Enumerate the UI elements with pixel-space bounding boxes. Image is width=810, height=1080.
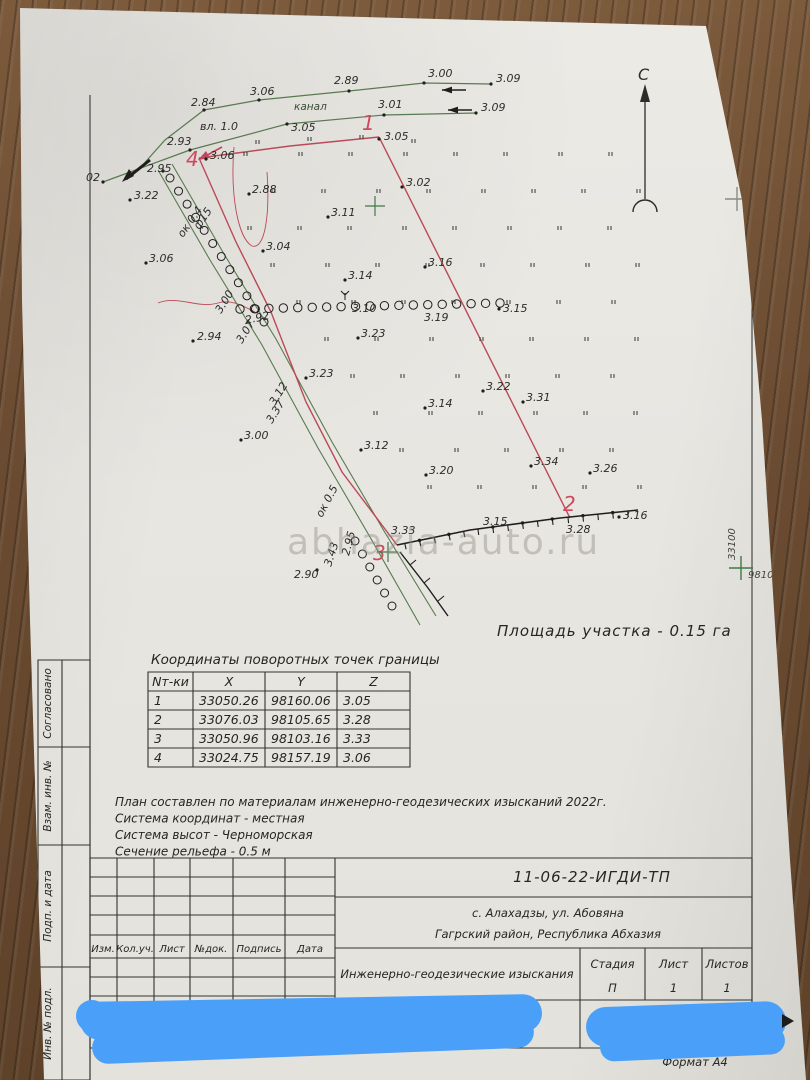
elevation-dot bbox=[422, 81, 425, 84]
revision-header-cell: Дата bbox=[296, 944, 323, 955]
elevation-label: 3.31 bbox=[526, 391, 551, 404]
sidebar-label: Взам. инв. № bbox=[42, 760, 54, 831]
elevation-dot bbox=[423, 265, 426, 268]
table-header-cell: X bbox=[224, 674, 234, 689]
boundary-4-3 bbox=[199, 158, 397, 545]
address-line2: Гагрский район, Республика Абхазия bbox=[435, 927, 661, 941]
elevation-dot bbox=[617, 515, 620, 518]
arrow-mark bbox=[782, 1014, 794, 1028]
table-cell: 33076.03 bbox=[199, 712, 259, 727]
plan-svg: 2.843.062.893.003.093.013.09вл. 1.03.053… bbox=[0, 0, 810, 1080]
elevation-label: 3.05 bbox=[384, 130, 409, 143]
grid-coordinates: 33100 98100 bbox=[727, 528, 780, 581]
elevation-label: 3.23 bbox=[309, 367, 334, 380]
elevation-dot bbox=[423, 406, 426, 409]
sidebar-label: Инв. № подл. bbox=[42, 987, 54, 1059]
table-cell: 98105.65 bbox=[271, 712, 331, 727]
table-cell: 98157.19 bbox=[271, 750, 331, 765]
table-header-cell: Nт-ки bbox=[152, 674, 189, 689]
elevation-label: 3.09 bbox=[496, 72, 521, 85]
elevation-label: 3.26 bbox=[593, 462, 618, 475]
coords-table: Nт-киXYZ133050.2698160.063.05233076.0398… bbox=[148, 672, 410, 767]
table-cell: 4 bbox=[154, 750, 162, 765]
elevation-label: 3.22 bbox=[486, 380, 511, 393]
paper-sheet: 2.843.062.893.003.093.013.09вл. 1.03.053… bbox=[0, 0, 810, 1080]
boundary-point-number: 1 bbox=[362, 111, 375, 135]
elevation-dot bbox=[588, 471, 591, 474]
elevation-dot bbox=[285, 122, 288, 125]
table-cell: 2 bbox=[154, 712, 162, 727]
elevation-dot bbox=[377, 137, 380, 140]
elevation-label: 3.06 bbox=[250, 85, 275, 98]
table-cell: 3.05 bbox=[343, 693, 371, 708]
elevation-label: 2.84 bbox=[191, 96, 216, 109]
table-cell: 98160.06 bbox=[271, 693, 331, 708]
elevation-label: 3.09 bbox=[481, 101, 506, 114]
elevation-dot bbox=[347, 89, 350, 92]
elevation-dot bbox=[326, 215, 329, 218]
table-cell: 3.33 bbox=[343, 731, 371, 746]
elevation-dot bbox=[204, 157, 207, 160]
elevation-label: 3.06 bbox=[210, 149, 235, 162]
stage-header-cell: Лист bbox=[658, 957, 688, 971]
elevation-dot bbox=[261, 249, 264, 252]
boundary-point-number: 4 bbox=[186, 147, 199, 171]
revision-header-cell: №док. bbox=[194, 944, 228, 955]
elevation-label: 3.01 bbox=[378, 98, 403, 111]
survey-type: Инженерно-геодезические изыскания bbox=[340, 967, 573, 981]
elevation-dot bbox=[521, 400, 524, 403]
stage-header-cell: Листов bbox=[705, 957, 749, 971]
revision-header-cell: Лист bbox=[158, 944, 186, 955]
elevation-dot bbox=[424, 473, 427, 476]
stage-value-cell: П bbox=[608, 981, 617, 995]
note-line: Система координат - местная bbox=[115, 812, 305, 826]
elevation-dot bbox=[356, 336, 359, 339]
elevation-label: 3.22 bbox=[134, 189, 159, 202]
elevation-label: 3.10 bbox=[352, 302, 377, 315]
elevation-label: 3.19 bbox=[424, 311, 449, 324]
canal-label: канал bbox=[294, 101, 327, 113]
elevation-dot bbox=[101, 180, 104, 183]
elevation-label: 3.23 bbox=[361, 327, 386, 340]
censor-scribble-left bbox=[76, 994, 542, 1064]
coords-table-title: Координаты поворотных точек границы bbox=[151, 652, 440, 668]
table-header-cell: Y bbox=[297, 674, 306, 689]
elevation-dot bbox=[400, 185, 403, 188]
elevation-label: 2.89 bbox=[334, 74, 359, 87]
elevation-label: вл. 1.0 bbox=[200, 120, 238, 133]
survey-notes: План составлен по материалам инженерно-г… bbox=[115, 795, 607, 859]
address-line1: с. Алахадзы, ул. Абовяна bbox=[472, 906, 624, 920]
elevation-label: 3.11 bbox=[331, 206, 356, 219]
table-cell: 33050.96 bbox=[199, 731, 259, 746]
elevation-dot bbox=[247, 192, 250, 195]
watermark: abhazia-auto.ru bbox=[287, 522, 600, 563]
elevation-label: 3.00 bbox=[244, 429, 269, 442]
elevation-label: 3.16 bbox=[428, 256, 453, 269]
table-cell: 3 bbox=[154, 731, 162, 746]
table-cell: 33050.26 bbox=[199, 693, 259, 708]
elevation-label: 3.15 bbox=[503, 302, 528, 315]
stage-header-cell: Стадия bbox=[590, 957, 634, 971]
revision-header-cell: Изм. bbox=[91, 944, 115, 955]
note-line: Система высот - Черноморская bbox=[115, 828, 313, 842]
boundary-point-number: 2 bbox=[563, 492, 576, 516]
elevation-label: 3.00 bbox=[213, 288, 237, 316]
grid-northing-label: 33100 bbox=[727, 528, 738, 560]
elevation-label: 3.34 bbox=[534, 455, 559, 468]
elevation-label: 3.00 bbox=[428, 67, 453, 80]
elevation-dot bbox=[257, 98, 260, 101]
stage-cells: СтадияЛистЛистовП11 bbox=[590, 957, 748, 995]
elevation-dot bbox=[474, 111, 477, 114]
elevation-dot bbox=[304, 376, 307, 379]
north-label: С bbox=[638, 65, 650, 84]
elevation-dot bbox=[144, 261, 147, 264]
table-cell: 33024.75 bbox=[199, 750, 259, 765]
contour-curve-1 bbox=[233, 147, 268, 246]
elevation-dot bbox=[239, 438, 242, 441]
doc-code: 11-06-22-ИГДИ-ТП bbox=[513, 868, 671, 886]
table-cell: 98103.16 bbox=[271, 731, 331, 746]
grid-cross bbox=[365, 196, 385, 216]
elevation-label: ок 0.5 bbox=[313, 483, 341, 519]
elevation-dot bbox=[128, 198, 131, 201]
table-cell: 3.28 bbox=[343, 712, 371, 727]
elevation-label: 2.90 bbox=[294, 568, 319, 581]
elevation-dot bbox=[481, 389, 484, 392]
sidebar-label: Подп. и дата bbox=[42, 870, 54, 942]
revision-header: Изм.Кол.уч.Лист№док.ПодписьДата bbox=[91, 944, 323, 955]
elevation-label: 2.94 bbox=[197, 330, 222, 343]
elevation-dot bbox=[529, 464, 532, 467]
table-header-cell: Z bbox=[368, 674, 378, 689]
elevation-dot bbox=[359, 448, 362, 451]
stage-value-cell: 1 bbox=[723, 981, 730, 995]
elevation-dot bbox=[343, 278, 346, 281]
elevation-label: 2.95 bbox=[147, 162, 172, 175]
elevation-dot bbox=[191, 339, 194, 342]
elevation-label: 3.06 bbox=[149, 252, 174, 265]
elevation-label: 2.88 bbox=[252, 183, 277, 196]
elevation-label: 3.14 bbox=[348, 269, 373, 282]
note-line: Сечение рельефа - 0.5 м bbox=[115, 845, 271, 859]
elevation-label: 3.04 bbox=[266, 240, 291, 253]
tree-symbol bbox=[341, 291, 349, 300]
table-cell: 1 bbox=[154, 693, 162, 708]
grid-easting-label: 98100 bbox=[748, 570, 780, 581]
elevation-dot bbox=[497, 307, 500, 310]
elevation-dot bbox=[382, 113, 385, 116]
elevation-label: 3.14 bbox=[428, 397, 453, 410]
censor-scribbles bbox=[76, 994, 794, 1064]
censor-scribble-right bbox=[585, 1001, 786, 1062]
sidebar-label: Согласовано bbox=[42, 668, 54, 739]
stage-value-cell: 1 bbox=[670, 981, 677, 995]
elevation-label: 3.16 bbox=[623, 509, 648, 522]
elevation-dot bbox=[489, 82, 492, 85]
table-cell: 3.06 bbox=[343, 750, 371, 765]
grid-cross bbox=[725, 187, 749, 211]
elevation-label: 3.02 bbox=[406, 176, 431, 189]
elevation-label: 3.05 bbox=[291, 121, 316, 134]
revision-header-cell: Кол.уч. bbox=[116, 944, 154, 955]
elevation-label: 02 bbox=[86, 171, 100, 184]
elevation-label: 3.20 bbox=[429, 464, 454, 477]
note-line: План составлен по материалам инженерно-г… bbox=[115, 795, 607, 809]
area-label: Площадь участка - 0.15 га bbox=[497, 622, 732, 640]
revision-header-cell: Подпись bbox=[237, 944, 282, 955]
elevation-label: 3.12 bbox=[364, 439, 389, 452]
